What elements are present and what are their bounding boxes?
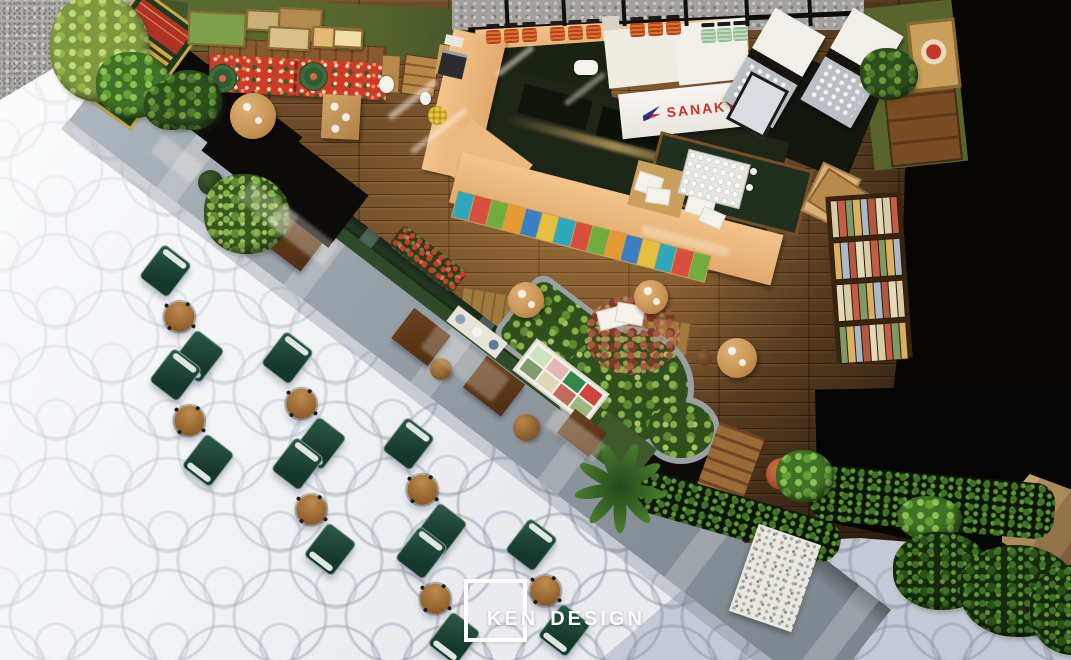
ken-design-watermark: KEN DESIGN	[487, 608, 645, 631]
interior-square-table	[321, 94, 361, 140]
sanaky-logo-icon	[642, 106, 661, 122]
bar-stool-orange	[666, 21, 682, 36]
bar-stool-mint	[701, 29, 717, 44]
ceramic-vase	[454, 312, 468, 326]
magazine-row	[830, 196, 900, 239]
interior-round-table	[230, 93, 276, 139]
interior-round-table	[717, 338, 757, 378]
wall-painting	[267, 26, 310, 51]
ceramic-vase	[486, 338, 500, 352]
paper-towel-roll	[379, 76, 394, 93]
magazine-spine	[896, 281, 905, 317]
magazine-spine	[899, 323, 908, 359]
magazine-row	[835, 280, 905, 323]
bar-stool-orange	[568, 26, 584, 41]
interior-round-table	[508, 282, 544, 318]
bar-stool-orange	[504, 29, 520, 44]
bar-stool-orange	[522, 28, 538, 43]
interior-round-table	[634, 280, 668, 314]
plant-foliage	[160, 70, 222, 130]
wall-painting	[333, 28, 364, 49]
magazine-spine	[893, 239, 902, 275]
magazine-display-shelf	[825, 192, 912, 363]
logo-word-ken: KEN	[487, 608, 538, 631]
bar-stool-orange	[586, 25, 602, 40]
plant-foliage	[776, 450, 834, 502]
menu-papers	[645, 186, 671, 205]
magazine-row	[833, 238, 903, 281]
coffee-cup	[750, 168, 757, 175]
sink-basin	[574, 60, 598, 75]
interior-stool	[696, 350, 712, 366]
wall-painting	[187, 11, 247, 48]
bar-stool-orange	[550, 27, 566, 42]
ceramic-vase	[470, 325, 484, 339]
logo-word-design: DESIGN	[550, 608, 645, 631]
magazine-row	[838, 322, 908, 365]
coffee-cup	[746, 184, 753, 191]
bar-stool-orange	[648, 22, 664, 37]
bar-stool-orange	[630, 23, 646, 38]
cafe-render-scene: SANAKY KEN DESIGN	[0, 0, 1071, 660]
magazine-spine	[890, 197, 899, 233]
walkway-stool	[513, 414, 540, 441]
bar-stool-orange	[486, 30, 502, 45]
bar-stool-mint	[717, 28, 733, 43]
round-cushion	[299, 62, 328, 91]
plant-foliage	[860, 48, 918, 100]
bar-stool-mint	[733, 27, 749, 42]
